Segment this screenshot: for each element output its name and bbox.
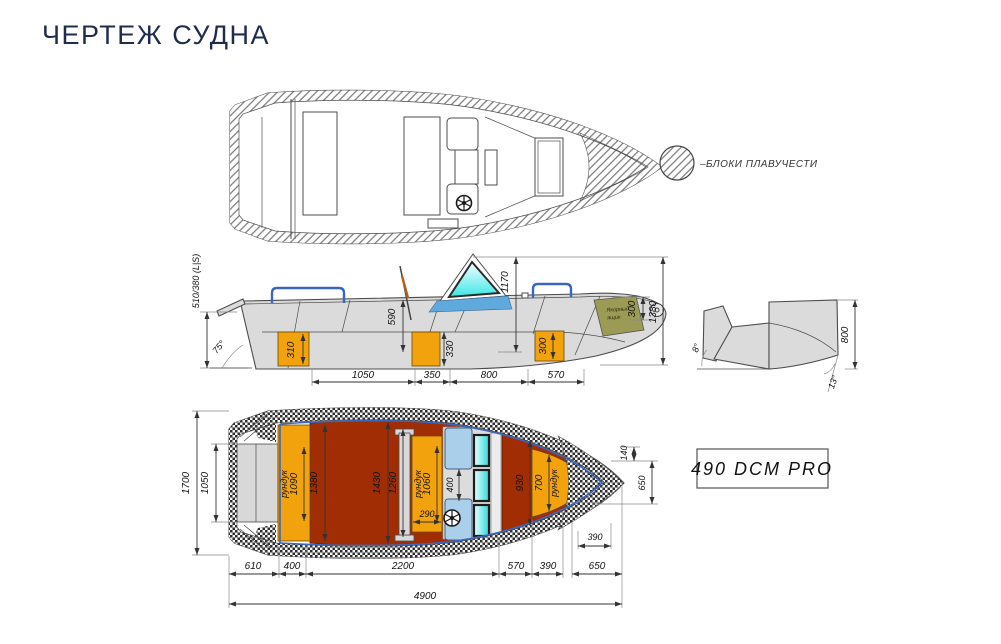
dim-390-bow: 390 [587, 532, 602, 542]
aft-locker-top [303, 112, 337, 215]
dim-total-4900: 4900 [414, 591, 437, 602]
side-view: Якорный ящик 510/380 (L|S) 75° 310 330 3… [191, 254, 668, 386]
steering-wheel-icon-plan [444, 510, 460, 526]
dim-b570-plan: 570 [508, 561, 525, 572]
dim-650-bow: 650 [637, 475, 647, 490]
stern-cap [217, 299, 245, 316]
dim-1380-plan: 1380 [309, 471, 320, 494]
dim-140: 140 [619, 445, 629, 460]
dim-b350: 350 [424, 370, 441, 381]
dim-b390: 390 [540, 561, 557, 572]
dim-330: 330 [445, 340, 456, 357]
bow-locker-label: рундук [549, 468, 559, 498]
dim-b1050: 1050 [352, 370, 375, 381]
model-badge-label: 490 DCM PRO [691, 459, 833, 479]
dim-300-block: 300 [538, 337, 549, 354]
dim-b2200: 2200 [391, 561, 415, 572]
dim-1700: 1700 [181, 471, 192, 494]
dim-1060: 1060 [422, 472, 433, 495]
legend-label: –БЛОКИ ПЛАВУЧЕСТИ [699, 159, 818, 170]
dim-b610: 610 [245, 561, 262, 572]
bow-cleat [522, 293, 528, 298]
steering-wheel-icon-top [457, 196, 472, 211]
dim-angle-13: 13° [826, 373, 840, 390]
dim-300-bow: 300 [627, 300, 638, 317]
dim-700: 700 [534, 474, 545, 491]
stern-locker-label: рундук [279, 469, 289, 499]
foam-block-2 [412, 332, 440, 366]
dim-310: 310 [286, 341, 297, 358]
transom-panel [769, 300, 838, 369]
dim-400-gap: 400 [445, 477, 455, 492]
dim-b400: 400 [284, 561, 301, 572]
dim-side-height: 510/380 (L|S) [191, 254, 201, 308]
anchor-box-label-2: ящик [606, 315, 621, 322]
dim-b650: 650 [589, 561, 606, 572]
buoyancy-legend-icon [660, 146, 694, 180]
console-panel [455, 150, 478, 184]
plan-view: 1700 1050 рундук 1090 1380 1430 1260 рун… [181, 408, 658, 608]
dim-1260: 1260 [388, 471, 399, 494]
dim-1170: 1170 [500, 271, 511, 293]
dim-b800: 800 [481, 370, 498, 381]
transom-view: 8° 13° 800 [690, 300, 858, 392]
dim-1430: 1430 [372, 471, 383, 494]
seat-upper [445, 428, 472, 469]
console-top-box [447, 118, 478, 150]
mid-bench-top [404, 117, 440, 215]
dim-angle-8: 8° [690, 342, 702, 354]
dim-1380: 1380 [648, 300, 659, 323]
dim-590: 590 [387, 308, 398, 325]
dim-930: 930 [515, 474, 526, 491]
windshield-glass-plan [474, 435, 489, 536]
legend: –БЛОКИ ПЛАВУЧЕСТИ [660, 146, 818, 180]
stern-platform [237, 444, 278, 522]
drawing-page: ЧЕРТЕЖ СУДНА [0, 0, 1001, 644]
dim-290: 290 [418, 509, 434, 519]
dim-stern-angle: 75° [210, 338, 227, 355]
stern-hatch [428, 219, 458, 228]
dim-1090: 1090 [289, 472, 300, 495]
model-badge: 490 DCM PRO [691, 449, 833, 488]
dim-b570: 570 [548, 370, 565, 381]
boat-drawing: –БЛОКИ ПЛАВУЧЕСТИ Якорный ящик [0, 0, 1001, 644]
dim-1050: 1050 [200, 471, 211, 494]
top-view [230, 90, 662, 243]
console-side-strip [491, 433, 501, 539]
bow-deck [535, 138, 563, 196]
dim-800: 800 [840, 326, 851, 343]
passenger-seat-top [485, 150, 497, 185]
